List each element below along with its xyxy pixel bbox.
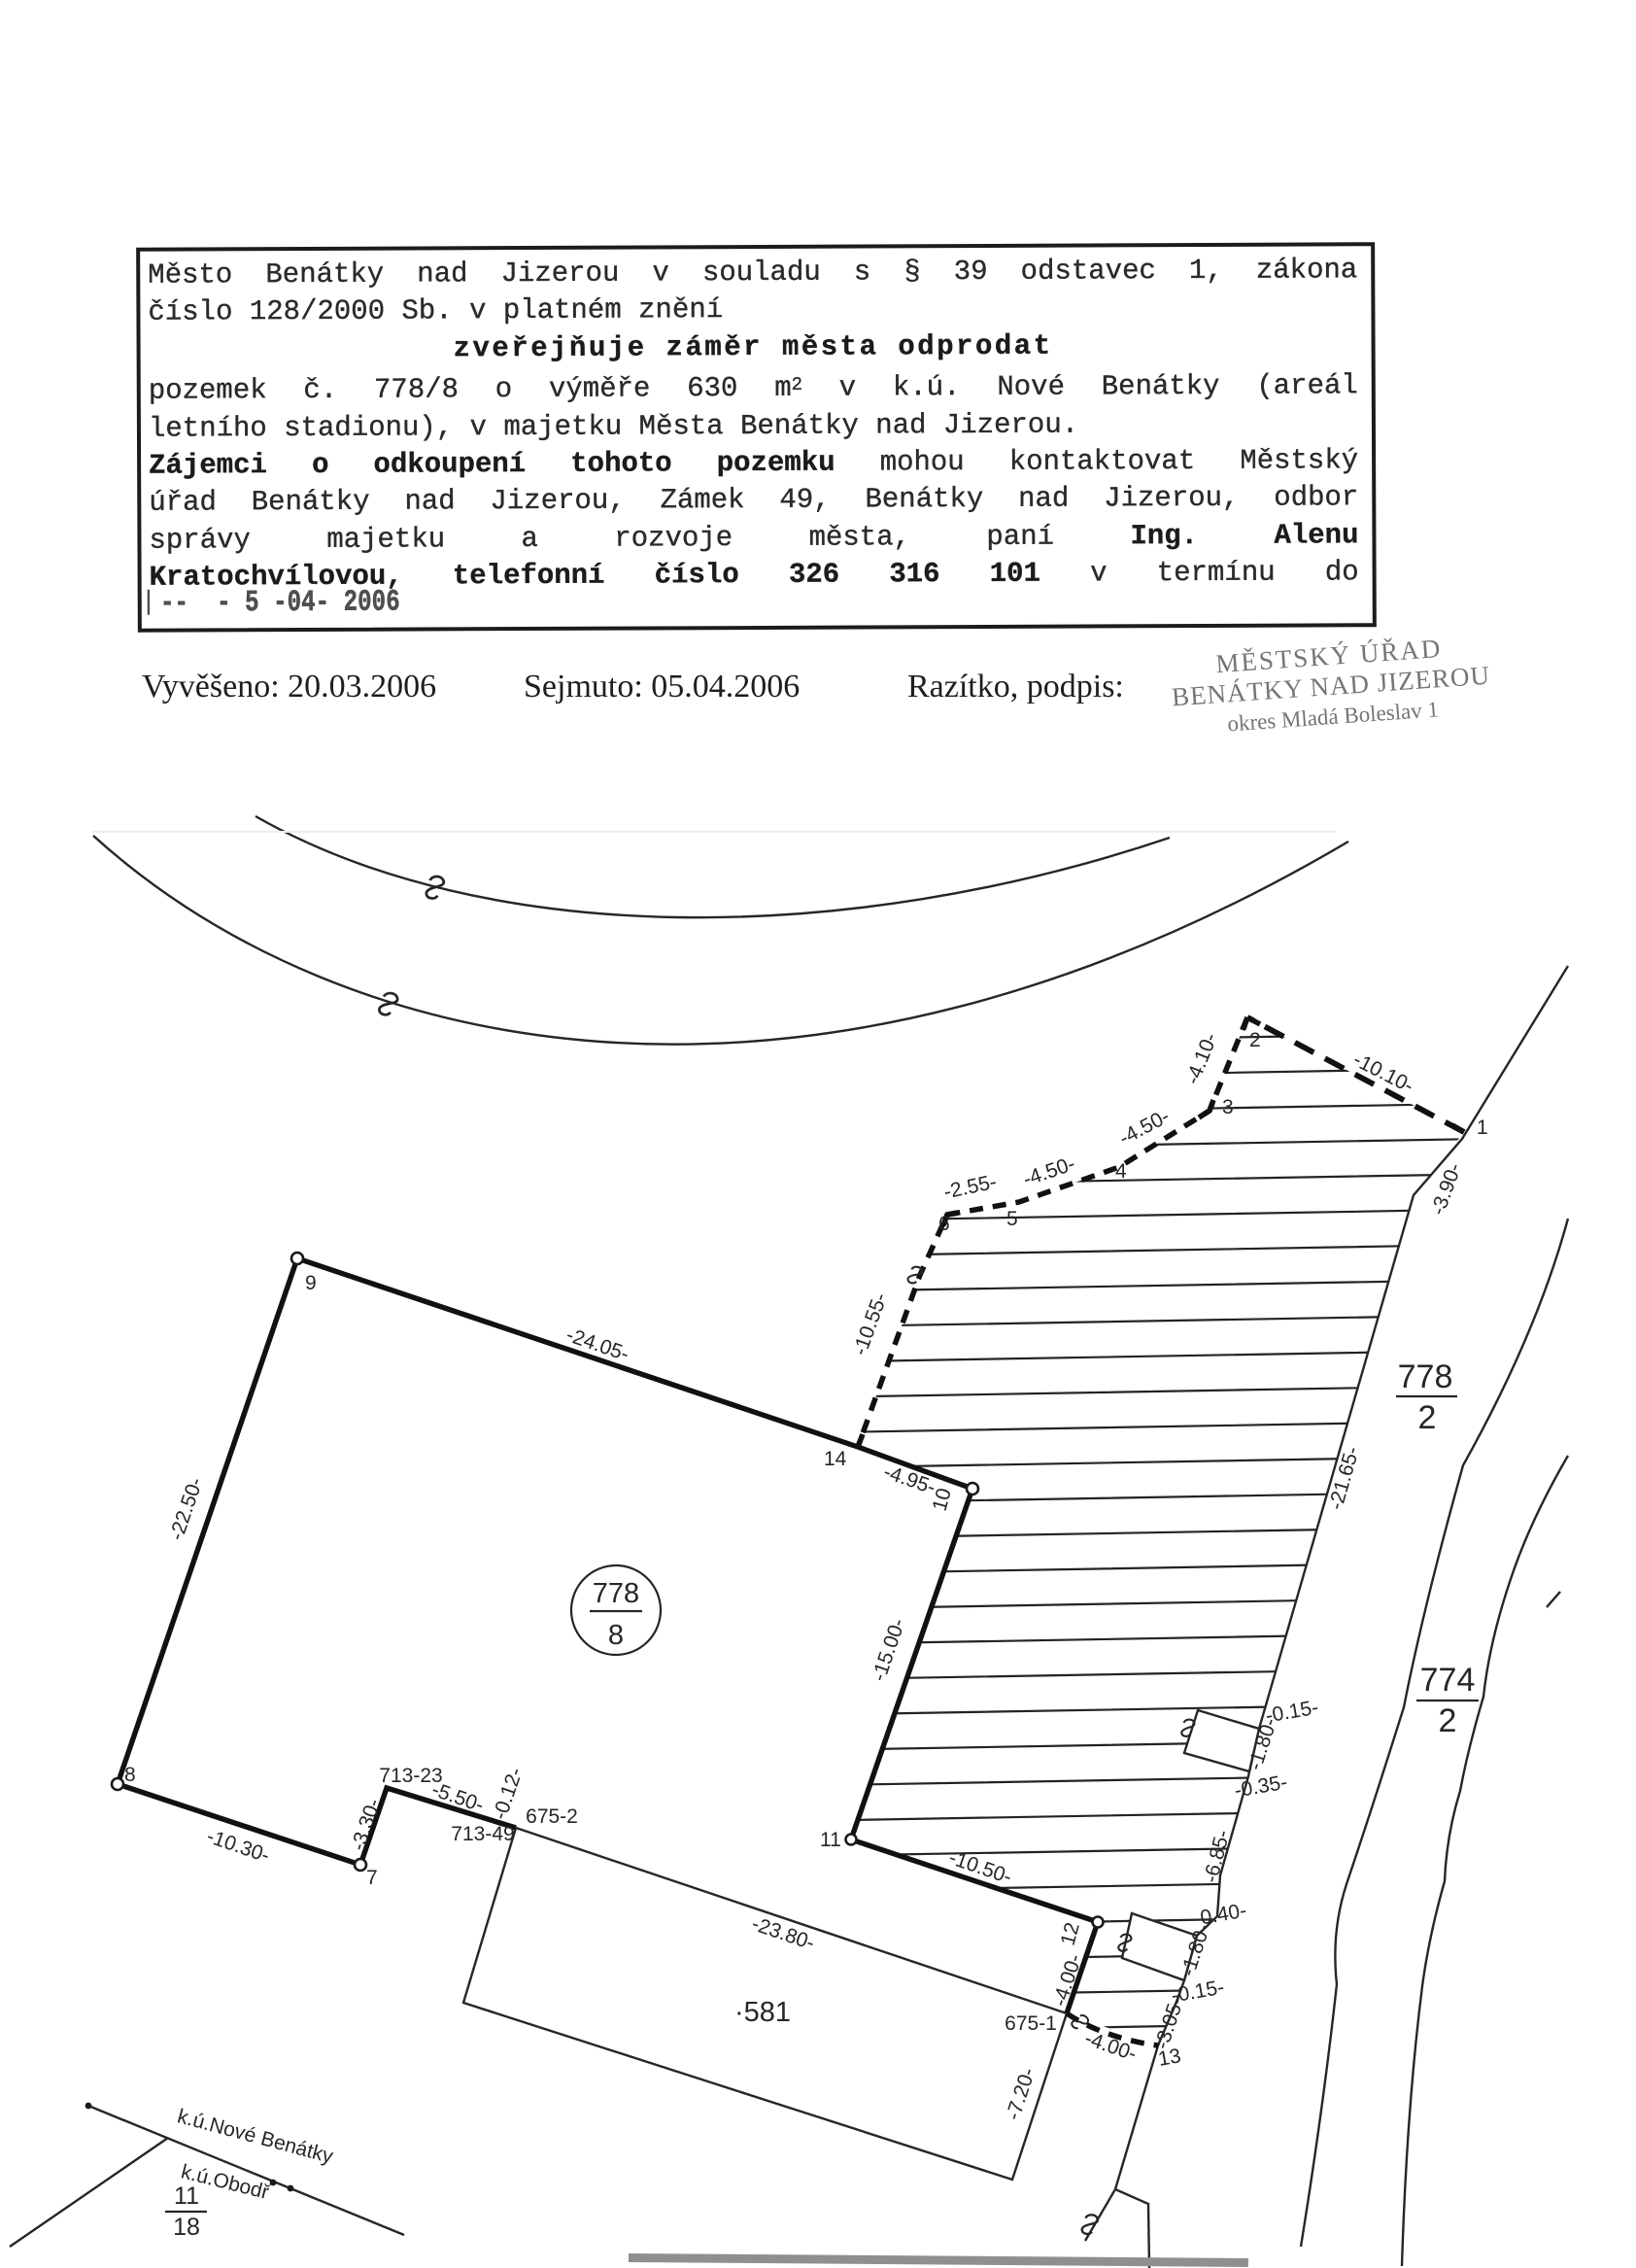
svg-text:675-2: 675-2 <box>526 1805 578 1828</box>
svg-text:2: 2 <box>1249 1029 1261 1051</box>
svg-text:1: 1 <box>1477 1117 1488 1139</box>
svg-text:11: 11 <box>820 1829 841 1851</box>
svg-text:8: 8 <box>608 1620 624 1651</box>
svg-text:-6.85-: -6.85- <box>1200 1828 1235 1885</box>
svg-text:4: 4 <box>1115 1160 1127 1183</box>
svg-text:2: 2 <box>1439 1702 1457 1739</box>
svg-text:778: 778 <box>1398 1358 1453 1395</box>
svg-text:713-49: 713-49 <box>451 1823 514 1845</box>
svg-text:675-1: 675-1 <box>1005 2012 1057 2035</box>
svg-text:18: 18 <box>173 2214 200 2241</box>
svg-text:14: 14 <box>824 1448 847 1470</box>
svg-text:·581: ·581 <box>734 1997 791 2028</box>
svg-text:-2.55-: -2.55- <box>941 1171 998 1204</box>
svg-text:7: 7 <box>366 1867 378 1889</box>
svg-text:2: 2 <box>1418 1399 1437 1436</box>
svg-text:-4.50-: -4.50- <box>1115 1105 1173 1150</box>
svg-text:-0.15-: -0.15- <box>1264 1697 1320 1728</box>
svg-text:8: 8 <box>124 1764 136 1786</box>
svg-text:9: 9 <box>305 1272 317 1294</box>
svg-text:3: 3 <box>1222 1096 1234 1118</box>
svg-text:-3.30-: -3.30- <box>347 1796 386 1853</box>
svg-text:-3.90-: -3.90- <box>1427 1160 1466 1218</box>
svg-text:-0.35-: -0.35- <box>1233 1771 1289 1803</box>
svg-text:713-23: 713-23 <box>379 1765 442 1787</box>
svg-text:-0.12-: -0.12- <box>489 1765 528 1822</box>
svg-text:-4.10-: -4.10- <box>1181 1030 1222 1087</box>
svg-text:-10.10-: -10.10- <box>1349 1048 1417 1098</box>
svg-text:k.ú.Nové Benátky: k.ú.Nové Benátky <box>175 2105 335 2168</box>
svg-text:-15.00-: -15.00- <box>868 1616 909 1684</box>
svg-text:-3.05-: -3.05- <box>1150 1994 1188 2051</box>
svg-text:12: 12 <box>1057 1920 1084 1948</box>
svg-text:774: 774 <box>1420 1662 1476 1699</box>
svg-text:5: 5 <box>1006 1208 1018 1230</box>
svg-text:-10.55-: -10.55- <box>849 1290 892 1358</box>
svg-text:778: 778 <box>593 1578 639 1609</box>
svg-text:11: 11 <box>174 2182 199 2210</box>
svg-text:6: 6 <box>938 1213 950 1235</box>
